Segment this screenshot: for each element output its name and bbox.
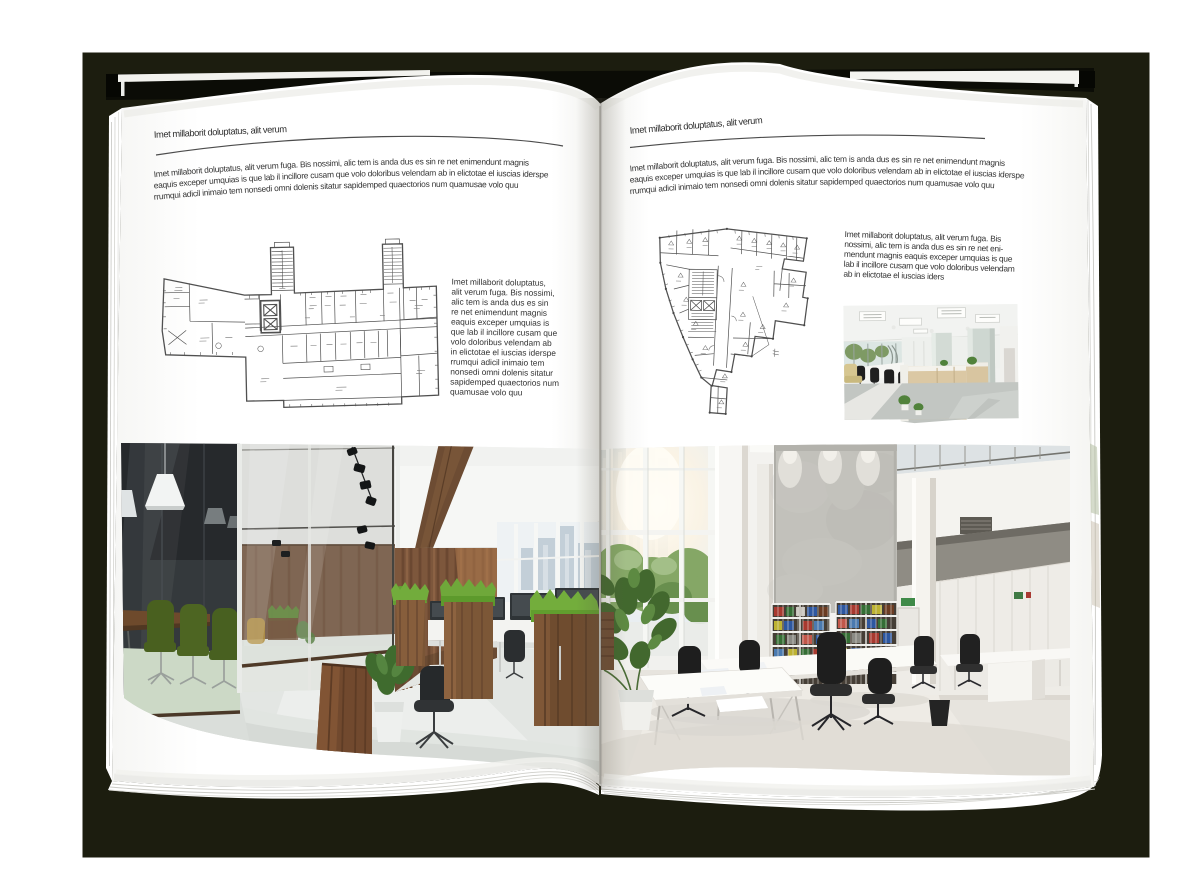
svg-text:quamusae volo quu: quamusae volo quu [450, 386, 523, 397]
